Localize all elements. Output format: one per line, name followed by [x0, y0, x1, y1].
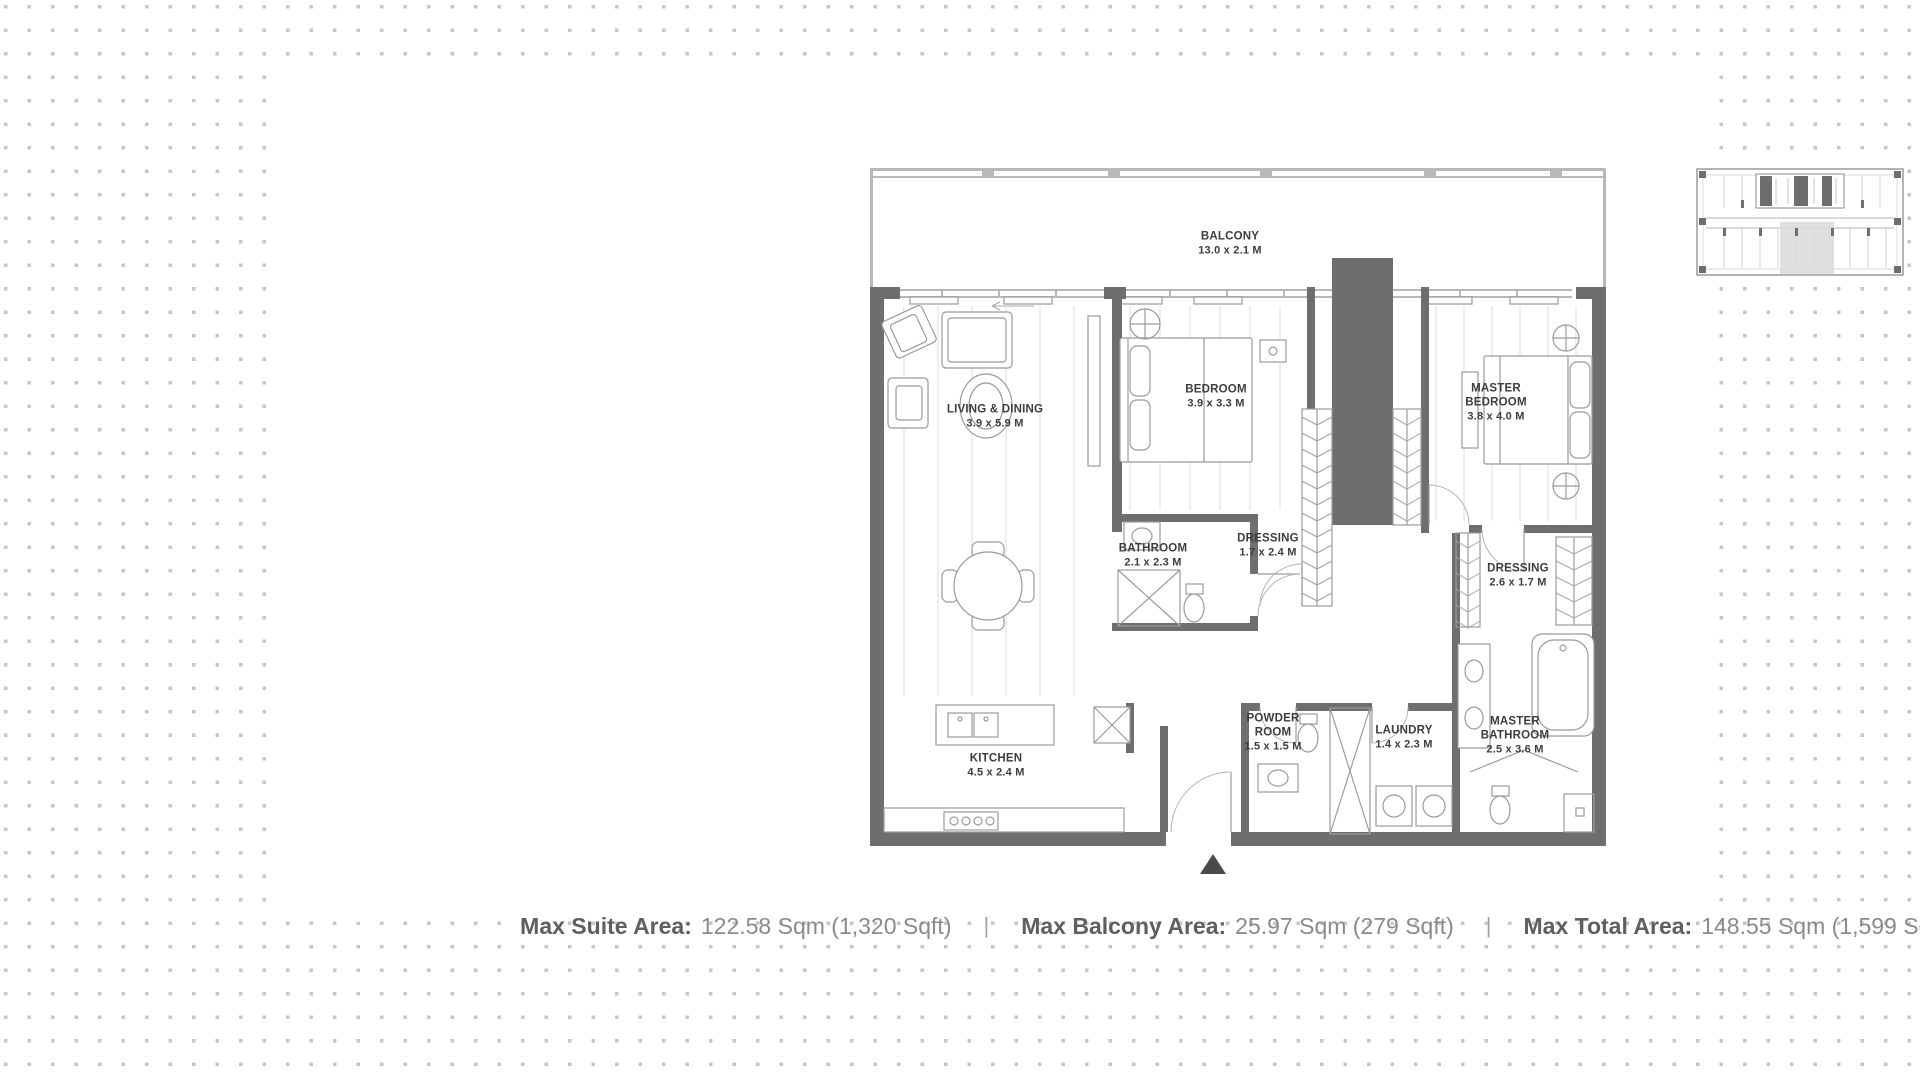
room-label-dressing-1: DRESSING 1.7 x 2.4 M — [1223, 533, 1313, 560]
room-dims: 3.9 x 3.3 M — [1170, 397, 1262, 410]
room-label-balcony: BALCONY 13.0 x 2.1 M — [1165, 231, 1295, 258]
room-name: KITCHEN — [950, 753, 1042, 767]
balcony-area-label: Max Balcony Area: — [1021, 913, 1226, 939]
key-plan-highlighted-unit — [1780, 222, 1834, 274]
room-name: BEDROOM — [1170, 384, 1262, 398]
total-area-stat: Max Total Area:148.55 Sqm (1,599 Sqft) — [1524, 913, 1920, 940]
room-name: LIVING & DINING — [920, 404, 1070, 418]
room-dims: 2.6 x 1.7 M — [1473, 576, 1563, 589]
room-label-laundry: LAUNDRY 1.4 x 2.3 M — [1359, 725, 1449, 752]
page-background: BALCONY 13.0 x 2.1 M LIVING & DINING 3.9… — [0, 0, 1920, 1078]
room-label-living-dining: LIVING & DINING 3.9 x 5.9 M — [920, 404, 1070, 431]
floor-plan: BALCONY 13.0 x 2.1 M LIVING & DINING 3.9… — [864, 166, 1620, 878]
room-label-kitchen: KITCHEN 4.5 x 2.4 M — [950, 753, 1042, 780]
room-label-master-bathroom: MASTER BATHROOM 2.5 x 3.6 M — [1473, 716, 1557, 757]
suite-area-stat: Max Suite Area:122.58 Sqm (1,320 Sqft) — [520, 913, 951, 940]
room-label-bedroom: BEDROOM 3.9 x 3.3 M — [1170, 384, 1262, 411]
room-label-bathroom: BATHROOM 2.1 x 2.3 M — [1107, 543, 1199, 570]
total-area-label: Max Total Area: — [1524, 913, 1693, 939]
total-area-value: 148.55 Sqm (1,599 Sqft) — [1701, 913, 1920, 939]
room-dims: 3.8 x 4.0 M — [1454, 410, 1538, 423]
entrance-arrow-icon — [1200, 854, 1226, 874]
window-wall — [870, 287, 1606, 310]
room-name: BALCONY — [1165, 231, 1295, 245]
room-name: MASTER BATHROOM — [1473, 716, 1557, 744]
key-plan-core — [1756, 174, 1844, 208]
room-name: DRESSING — [1223, 533, 1313, 547]
room-dims: 1.5 x 1.5 M — [1241, 740, 1305, 753]
room-label-powder-room: POWDER ROOM 1.5 x 1.5 M — [1241, 713, 1305, 754]
area-stats-bar: Max Suite Area:122.58 Sqm (1,320 Sqft) |… — [276, 906, 1920, 946]
bathroom-furniture — [1118, 522, 1204, 626]
room-name: DRESSING — [1473, 563, 1563, 577]
balcony-structure — [870, 168, 1606, 289]
room-dims: 2.1 x 2.3 M — [1107, 556, 1199, 569]
room-dims: 1.4 x 2.3 M — [1359, 738, 1449, 751]
core-shaft — [1332, 258, 1393, 525]
key-plan — [1694, 166, 1906, 278]
room-name: LAUNDRY — [1359, 725, 1449, 739]
room-dims: 3.9 x 5.9 M — [920, 417, 1070, 430]
balcony-area-value: 25.97 Sqm (279 Sqft) — [1235, 913, 1454, 939]
room-dims: 2.5 x 3.6 M — [1473, 743, 1557, 756]
stat-separator: | — [1486, 913, 1492, 939]
content-card: BALCONY 13.0 x 2.1 M LIVING & DINING 3.9… — [276, 66, 1708, 906]
living-dining-furniture — [881, 304, 1100, 630]
room-name: POWDER ROOM — [1241, 713, 1305, 741]
room-dims: 4.5 x 2.4 M — [950, 766, 1042, 779]
suite-area-label: Max Suite Area: — [520, 913, 692, 939]
balcony-area-stat: Max Balcony Area:25.97 Sqm (279 Sqft) — [1021, 913, 1454, 940]
room-label-master-bedroom: MASTER BEDROOM 3.8 x 4.0 M — [1454, 383, 1538, 424]
suite-area-value: 122.58 Sqm (1,320 Sqft) — [701, 913, 952, 939]
key-plan-drawing — [1694, 166, 1906, 278]
room-name: BATHROOM — [1107, 543, 1199, 557]
room-dims: 13.0 x 2.1 M — [1165, 244, 1295, 257]
stat-separator: | — [983, 913, 989, 939]
room-label-dressing-2: DRESSING 2.6 x 1.7 M — [1473, 563, 1563, 590]
room-dims: 1.7 x 2.4 M — [1223, 546, 1313, 559]
room-name: MASTER BEDROOM — [1454, 383, 1538, 411]
